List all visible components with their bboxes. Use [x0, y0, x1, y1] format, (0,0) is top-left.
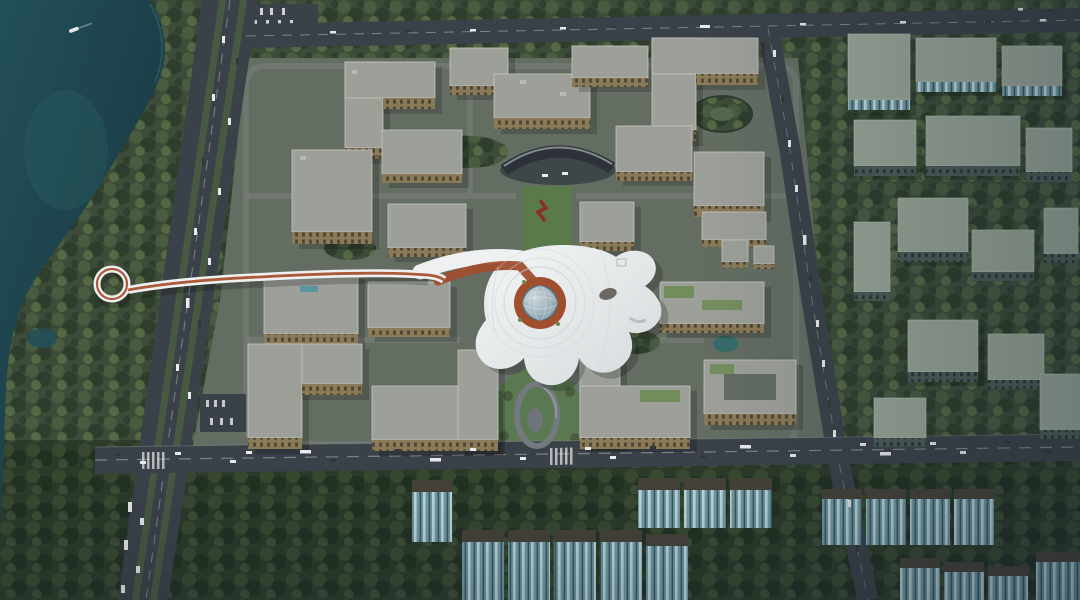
glass-dome: [523, 286, 557, 320]
parking-lot-southwest: [200, 394, 246, 432]
apartment-building: [572, 46, 655, 92]
aerial-architectural-rendering: [0, 0, 1080, 600]
central-lawn: [522, 186, 572, 250]
apartment-building: [382, 130, 469, 188]
aerial-render-stage: [0, 0, 1080, 600]
apartment-building: [368, 282, 457, 342]
apartment-building: [616, 126, 699, 186]
pond: [27, 328, 57, 348]
apartment-building: [292, 150, 379, 249]
